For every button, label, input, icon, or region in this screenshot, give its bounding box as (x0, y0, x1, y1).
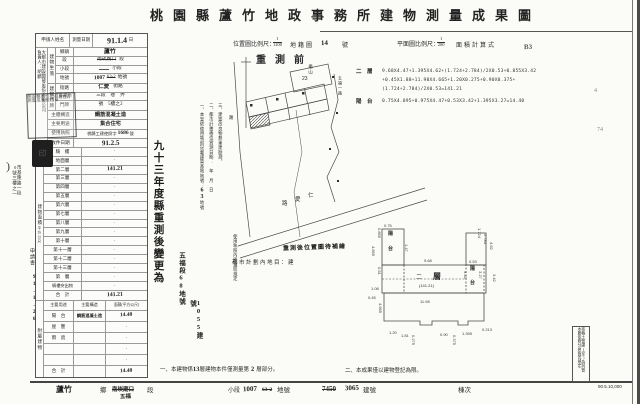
margin-date-hand: 91.1.26 (31, 274, 36, 308)
floor-row: 第十一層· (44, 246, 147, 255)
bottom-township-hand: 蘆竹 (56, 386, 72, 395)
lane-alley-value: 三段 巷 弄 (74, 93, 147, 101)
floor-row: 第十三層· (44, 264, 147, 273)
annex-row: · (44, 344, 147, 355)
plan-dim: 0.53 (469, 260, 477, 264)
license-value: 桃縣工建使照字1686號 (74, 130, 147, 138)
plan-balcony-a-char1: 陽 (388, 232, 393, 237)
map-road-bottom-char3: 仁 (308, 194, 314, 200)
area-calc-label: 面積計算式 (456, 43, 496, 49)
annex-row: 雨 遮· (44, 333, 147, 344)
cadastral-map-label: 地籍圖 (290, 43, 314, 49)
bottom-lot-hand: 1007 (243, 386, 257, 393)
building-location-group: 建物坐落 (48, 48, 56, 83)
zoning-note: 都市計劃內地目：建 (232, 261, 295, 267)
floor-row: 騎樓突出物· (44, 282, 147, 291)
cadastral-number-suffix: 號 (342, 43, 348, 49)
location-scale-fraction: 1 1200 (273, 37, 282, 47)
plan-dim: 3.42 (463, 271, 467, 279)
plan-dim: 1.724 (477, 228, 481, 238)
address-line2: 0號三樓之一 (13, 165, 18, 196)
plan-scale-label: 平面圖比例尺： (397, 42, 439, 48)
floor-row: 第 層· (44, 273, 147, 282)
annex-row-balcony: 陽 台鋼筋混凝土造14.40 (44, 311, 147, 322)
receipt-date-value: 91.2.5 (74, 139, 147, 148)
plan-balcony-b-char2: 台 (470, 281, 475, 286)
annex-group: 附屬建物 (36, 301, 44, 377)
map-road-bottom-char1: 路 (282, 202, 288, 208)
office-seal-stamp: 桃園縣蘆竹地政事務所測量成果校核章 (26, 92, 77, 139)
form-name-label: 申請書 (29, 248, 34, 272)
plan-dim: 4.62 (489, 242, 493, 250)
section-label: 段 (56, 57, 74, 65)
plan-dim: 4.665 (378, 303, 382, 313)
map-road-bottom-char2: 愛 (295, 198, 301, 204)
bottom-building-no-label: 建號 (363, 388, 376, 395)
plan-dim: 1.395 (462, 332, 472, 336)
plan-floor-char1: 二 (416, 275, 422, 281)
location-scale-label: 位置圖比例尺： (233, 42, 275, 48)
plan-dim: 0.275 (411, 335, 415, 345)
township-value: 蘆竹 (74, 48, 147, 56)
footer-rule (30, 381, 632, 383)
floor-area-section: 建物面積平方公尺 騎 樓· 地面層· 第二層141.21 第三層· 第四層· 第… (36, 148, 147, 301)
resurvey-new-lot: 五福段68地號 (177, 252, 184, 306)
applicant-address: 市基隆路一段 0號三樓之一 (12, 165, 21, 243)
annex-section: 附屬建物 主要用途 主要構造 面積(平方公尺) 陽 台鋼筋混凝土造14.40 屋… (36, 301, 147, 377)
subsection-value: 小段 (74, 66, 147, 74)
margin-note-1: 核稿土管課(室)為列管 (582, 327, 586, 373)
plan-dim: 1.20 (389, 331, 397, 335)
applicant-label: 申請人姓名 (36, 34, 70, 47)
floor-row: 騎 樓· (44, 148, 147, 157)
resurvey-new-building-no: 1055建號 (188, 300, 201, 344)
bottom-building-no-struck: 7450 (322, 386, 336, 393)
floor-row: 第十二層· (44, 255, 147, 264)
plan-dim: 0.375 (452, 335, 456, 345)
note-stake-survey-date: 二、都市計畫樁位實測日期： 年 月 日 (209, 103, 213, 243)
floor-row: 第五層· (44, 193, 147, 202)
plan-balcony-a-char2: 台 (388, 247, 393, 252)
cadastral-map-number: 14 (321, 40, 328, 47)
plan-dim: 2.784 (483, 234, 487, 244)
map-road-right-label: 五福一路 (338, 76, 342, 106)
pencil-mark-4: 4 (594, 88, 597, 94)
map-lot-number: 23 (302, 77, 308, 82)
title-underline (320, 31, 632, 32)
owner-name: 負責人：胡麟 (38, 50, 43, 79)
bottom-lot-label: 地號 (277, 388, 290, 395)
footer-note-2: 二、本成果僅以建物登記為限。 (345, 369, 422, 375)
floor-row: 第三層· (44, 175, 147, 184)
strike-mark (99, 69, 109, 70)
floor-area-group: 建物面積平方公尺 (36, 148, 44, 300)
formula-line2: +0.45X1.88+11.98X4.665+1.20X0.275+0.90X0… (382, 79, 515, 84)
lot-value: 100763-2地號 (74, 74, 147, 83)
bottom-building-no-hand: 3065 (345, 385, 359, 392)
floor-row: 地面層· (44, 157, 147, 166)
print-batch-number: 90.5.10,000 (598, 385, 622, 390)
map-title: 重測前 (256, 56, 313, 66)
floor-row: 第七層· (44, 211, 147, 220)
street-value: 仁愛街路 (74, 84, 147, 92)
map-lot-name: 龜山 (308, 64, 313, 78)
survey-form-table: 申請人姓名 測量日期 91.1.4 日 大都市建設開發股份有限公司 負責人：胡麟… (35, 33, 148, 378)
plan-floor-char2: 層 (433, 273, 441, 281)
bottom-subsection-label: 小段 (228, 388, 240, 394)
main-use-value: 集合住宅 (74, 120, 147, 128)
plan-dim: 0.75 (384, 224, 392, 228)
plan-balcony-b-char1: 陽 (470, 267, 475, 272)
map-road-left-label: 路 (229, 116, 234, 121)
plan-area-note: (141.21) (419, 284, 434, 288)
door-number-value: 號 5樓之2 (74, 101, 147, 110)
address-line1: 市基隆路一段 (17, 165, 22, 196)
survey-date-label: 測量日期 (70, 34, 93, 47)
footer-note-1: 一、本建物係13層建物本件僅測量第2層部分。 (160, 367, 278, 374)
pencil-mark-74: 74 (597, 127, 603, 133)
formula-line3: (1.724+2.784)/2X0.53=141.21 (382, 88, 462, 93)
resurvey-change-note: 九十三年度縣重測後變更為 (152, 140, 163, 290)
annex-total-row: 合 計14.40 (44, 366, 147, 377)
formula-balcony-label: 陽 台 (356, 100, 373, 106)
sheet-right-border (632, 0, 633, 404)
pencil-mark-b3: B3 (524, 44, 532, 51)
note-basis-lot: 一、本案依使用執照記載建築基地地號：63地號 (199, 103, 205, 273)
plan-dim: 3.27 (478, 271, 482, 279)
plan-dim: 3.42 (492, 274, 496, 282)
fraction-denominator: 200 (437, 43, 445, 48)
plan-dim: 0.213 (482, 328, 492, 332)
bottom-lot-struck: 63-2 (262, 388, 272, 394)
plan-scale-fraction: 1 200 (437, 37, 445, 47)
bottom-township-label: 鄉 (100, 388, 107, 395)
plan-dim: 0.51 (377, 267, 381, 275)
plan-dim: 0.90 (440, 333, 448, 337)
township-label: 鄉鎮 (56, 48, 74, 56)
floor-row: 第四層· (44, 184, 147, 193)
note-no-rebuild-survey: 三、建築改良物無重建勘測。 (218, 103, 222, 203)
floor-row: 第八層· (44, 220, 147, 229)
plan-dim: 4.895 (371, 246, 375, 256)
floor-plan-sketch (366, 221, 502, 361)
plan-dim: 11.98 (420, 300, 430, 304)
fraction-denominator: 1200 (273, 43, 282, 48)
plan-dim: 1.81 (401, 334, 409, 338)
subsection-label: 小段 (56, 66, 74, 74)
plan-dim: 0.855 (377, 228, 381, 238)
annex-row: · (44, 355, 147, 366)
survey-date-value: 91.1.4 日 (93, 34, 147, 47)
plan-dim: 0.45 (368, 296, 376, 300)
floor-total-row: 合 計141.21 (44, 291, 147, 300)
floor-row: 第九層· (44, 228, 147, 237)
survey-result-sheet: 桃園縣蘆竹地政事務所建物測量成果圖 位置圖比例尺： 1 1200 地籍圖 14 … (0, 0, 640, 404)
formula-line1: 9.68X4.47+1.395X4.62+(1.724+2.784)/2X0.5… (382, 70, 536, 75)
section-value: 南崁廟口段 (74, 57, 147, 65)
ink-seal-blob: 印 (32, 140, 53, 167)
bottom-unit-label: 棟次 (458, 388, 471, 395)
margin-note-2: 本聯依照分層負責規定 (578, 327, 582, 368)
bottom-section-hand: 五福 (120, 395, 131, 401)
floor-row-2f: 第二層141.21 (44, 166, 147, 175)
bottom-section-struck: 南崁廟口 (112, 388, 134, 394)
plan-dim: 1.08 (371, 287, 379, 291)
bottom-section-label: 段 (147, 388, 154, 395)
margin-control-box: 核稿土管課(室)為列管 本聯依照分層負責規定 (572, 326, 590, 382)
annex-row: 屋 簷· (44, 322, 147, 333)
structure-value: 鋼筋混凝土造 (74, 111, 147, 119)
lot-label: 地號 (56, 74, 74, 83)
formula-floor-label: 二 層 (356, 70, 373, 76)
floor-row: 第六層· (44, 202, 147, 211)
street-label: 街路 (56, 84, 74, 92)
plan-dim: 1.47 (404, 244, 408, 252)
annex-header-row: 主要用途 主要構造 面積(平方公尺) (44, 301, 147, 311)
margin-paren: ) (6, 160, 10, 172)
plan-dim: 9.68 (424, 259, 432, 263)
page-title: 桃園縣蘆竹地政事務所建物測量成果圖 (150, 9, 541, 22)
floor-row: 第十層· (44, 237, 147, 246)
formula-line4: 0.75X4.895+0.975X4.47+0.53X3.42+1.395X3.… (382, 100, 524, 105)
